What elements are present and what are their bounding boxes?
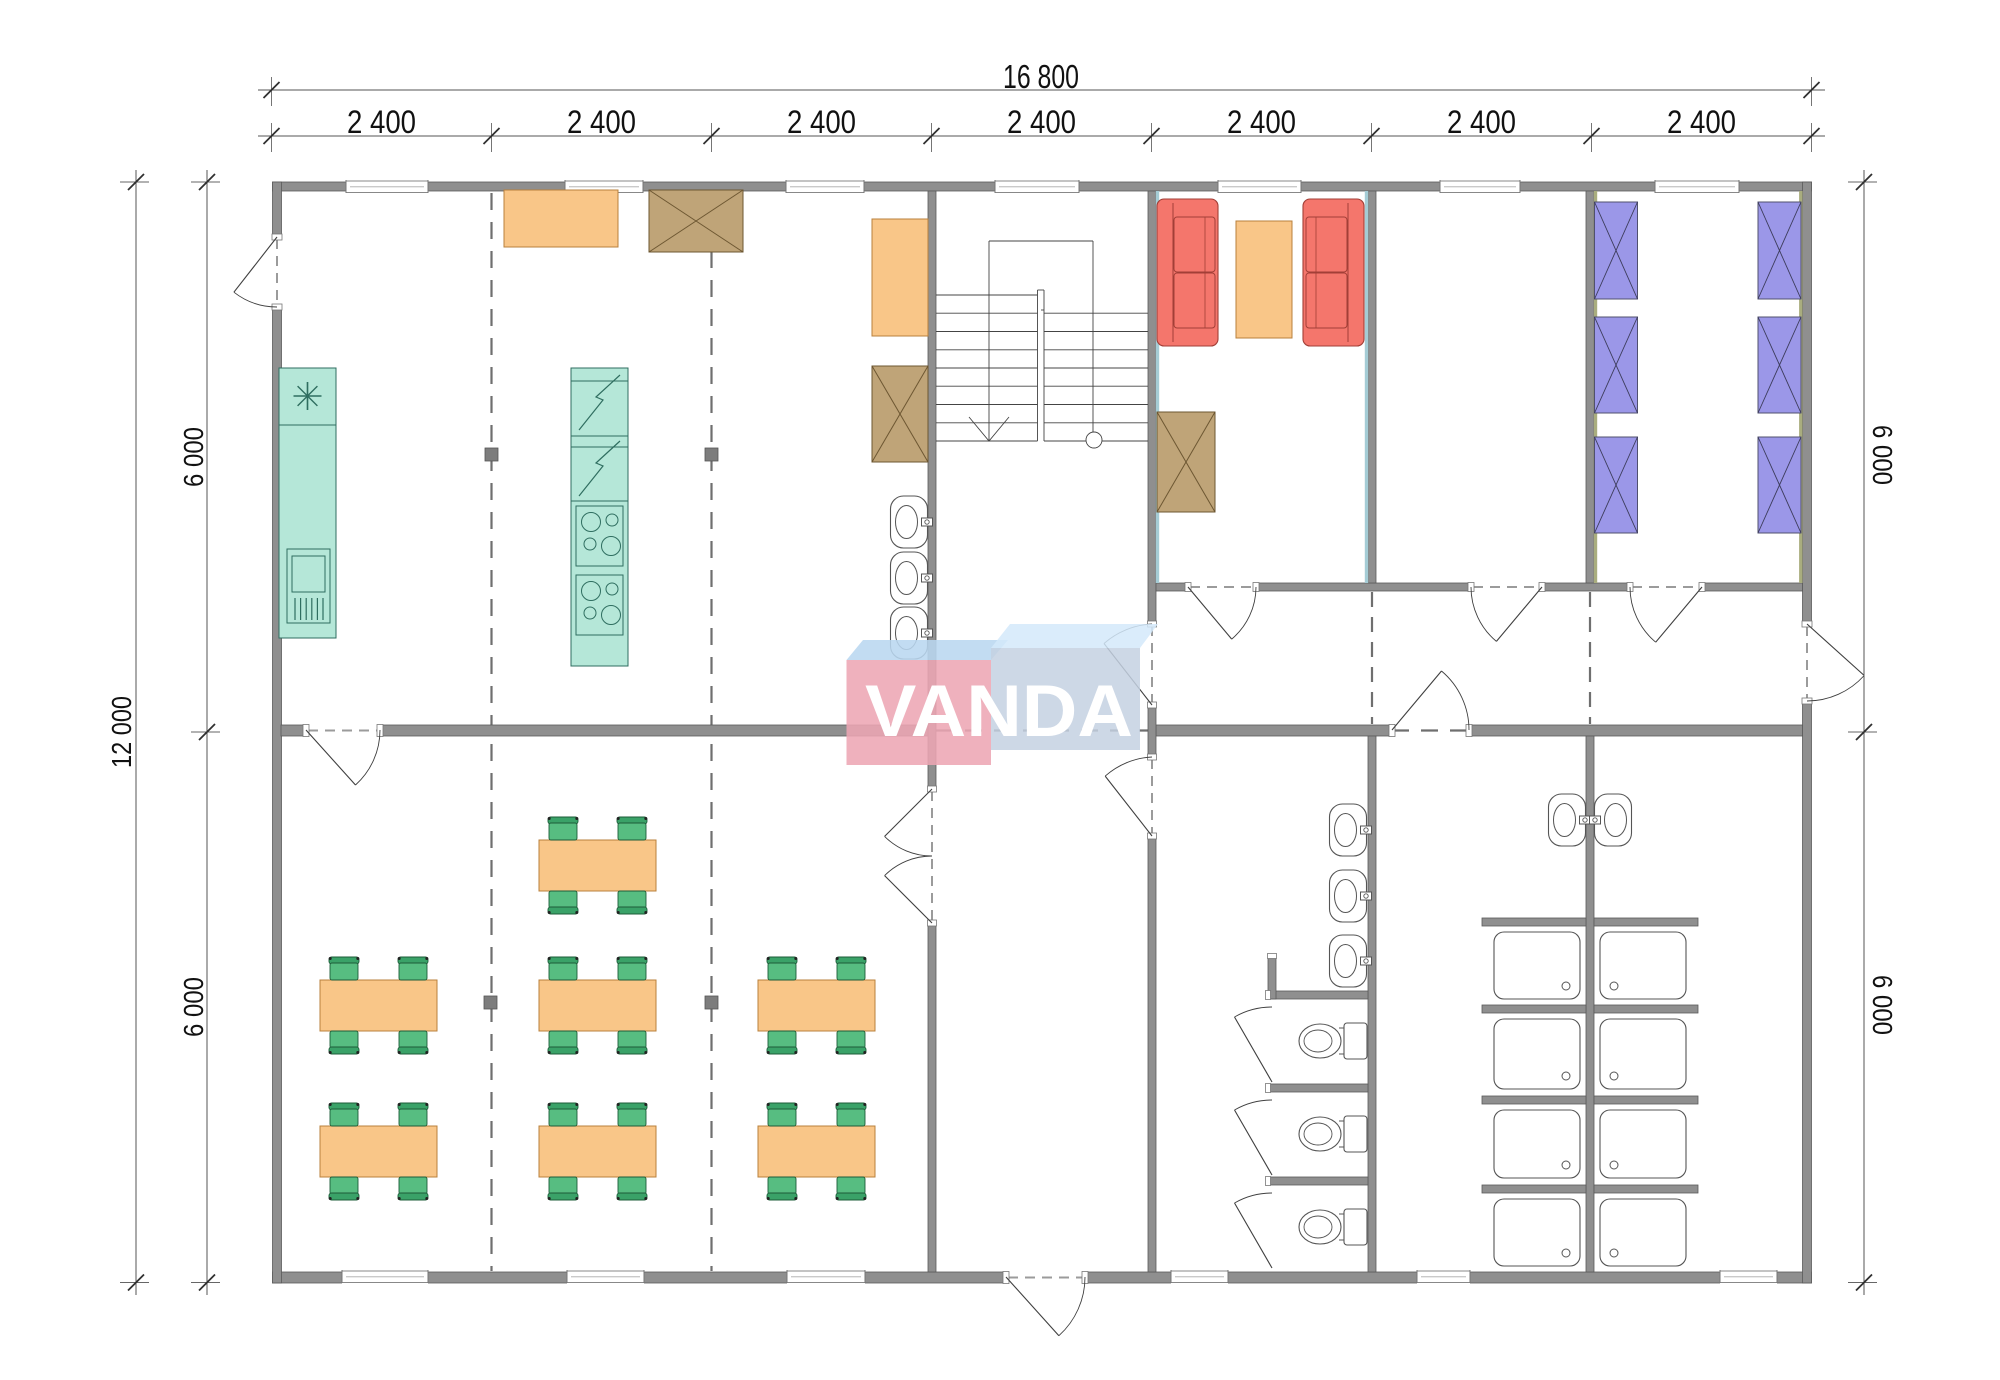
svg-text:6 000: 6 000 [178,427,209,487]
svg-text:6 000: 6 000 [1867,425,1898,485]
svg-text:12 000: 12 000 [106,696,137,768]
svg-text:2 400: 2 400 [1447,104,1516,140]
svg-text:2 400: 2 400 [567,104,636,140]
svg-text:2 400: 2 400 [787,104,856,140]
svg-text:VANDA: VANDA [865,671,1133,752]
svg-text:16 800: 16 800 [1003,58,1079,95]
svg-text:6 000: 6 000 [178,977,209,1037]
svg-text:2 400: 2 400 [1007,104,1076,140]
svg-text:2 400: 2 400 [1667,104,1736,140]
svg-text:6 000: 6 000 [1867,975,1898,1035]
svg-text:2 400: 2 400 [1227,104,1296,140]
svg-text:2 400: 2 400 [347,104,416,140]
